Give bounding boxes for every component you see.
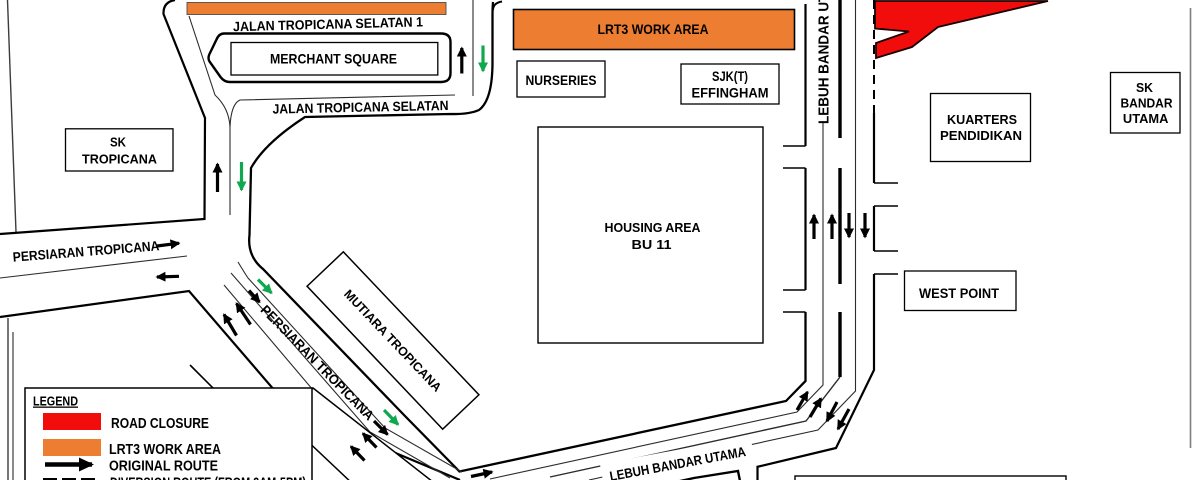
svg-text:WEST POINT: WEST POINT [919,286,1000,301]
svg-text:BANDAR: BANDAR [1121,97,1173,111]
svg-text:LRT3 WORK AREA: LRT3 WORK AREA [598,21,709,37]
svg-text:PENDIDIKAN: PENDIDIKAN [940,128,1022,143]
svg-text:DIVERSION ROUTE (FROM 9AM-5PM): DIVERSION ROUTE (FROM 9AM-5PM) [110,476,306,480]
svg-text:UTAMA: UTAMA [1123,112,1169,126]
svg-text:SK: SK [1136,81,1153,95]
svg-text:SK: SK [110,135,127,150]
svg-text:NURSERIES: NURSERIES [526,73,597,88]
svg-text:EFFINGHAM: EFFINGHAM [692,86,769,101]
svg-text:KUARTERS: KUARTERS [947,112,1017,127]
svg-text:LEGEND: LEGEND [33,394,78,409]
svg-text:ROAD CLOSURE: ROAD CLOSURE [111,416,209,432]
svg-text:LRT3 WORK AREA: LRT3 WORK AREA [109,442,221,458]
svg-text:MERCHANT SQUARE: MERCHANT SQUARE [270,51,397,67]
svg-text:BU 11: BU 11 [632,237,672,252]
svg-text:SJK(T): SJK(T) [712,69,748,84]
svg-text:TROPICANA: TROPICANA [82,152,158,167]
svg-text:LEBUH BANDAR UTAMA: LEBUH BANDAR UTAMA [817,0,833,124]
svg-text:ORIGINAL ROUTE: ORIGINAL ROUTE [109,459,218,475]
svg-text:HOUSING AREA: HOUSING AREA [605,220,702,235]
